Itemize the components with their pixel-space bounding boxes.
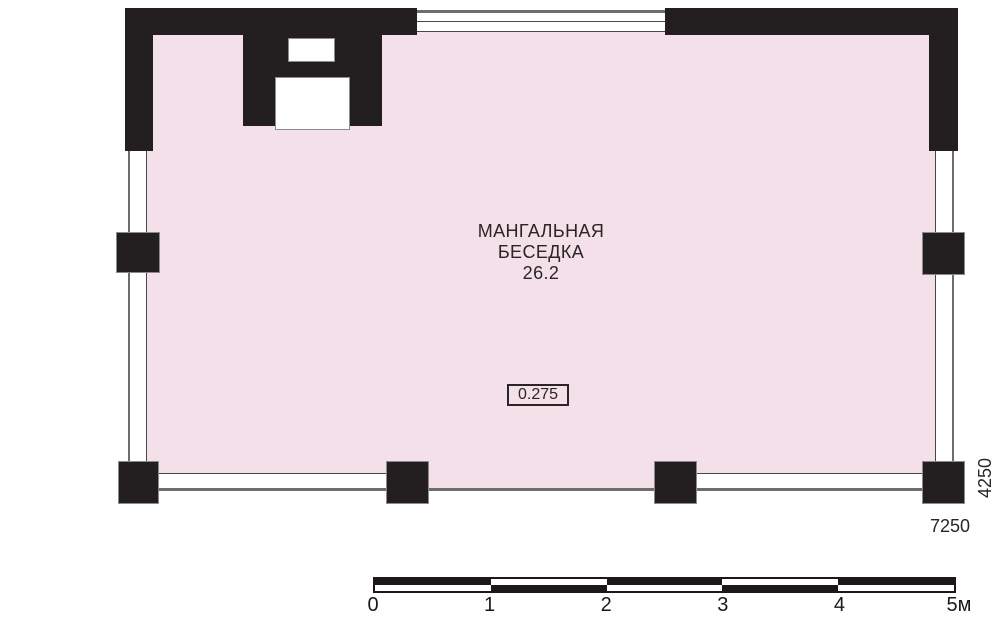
wall-left	[125, 8, 153, 151]
scale-label-5: 5м	[946, 594, 971, 617]
entry-opening	[428, 471, 655, 488]
scale-bar-segment	[491, 579, 607, 591]
scale-bar-segment	[607, 579, 723, 591]
elevation-mark-box: 0.275	[507, 384, 569, 406]
scale-label-2: 2	[601, 594, 612, 617]
wall-right	[929, 8, 958, 151]
room-name-line2: БЕСЕДКА	[400, 242, 682, 263]
room-name-line1: МАНГАЛЬНАЯ	[400, 221, 682, 242]
scale-bar-segment	[722, 579, 838, 591]
window-left	[128, 150, 147, 462]
scale-bar-cell	[607, 585, 723, 591]
scale-bar-segment	[838, 579, 954, 591]
scale-bar-segment	[375, 579, 491, 591]
wall-top-right	[665, 8, 957, 35]
column-bottom-right	[922, 461, 965, 504]
scale-bar-cell	[838, 585, 954, 591]
wall-top-left	[125, 8, 417, 35]
scale-bar	[373, 577, 956, 593]
room-label: МАНГАЛЬНАЯ БЕСЕДКА 26.2	[400, 221, 682, 284]
dimension-width-label: 7250	[919, 516, 981, 537]
column-bottom-middle-2	[654, 461, 697, 504]
column-bottom-middle-1	[386, 461, 429, 504]
scale-bar-labels: 0 1 2 3 4 5м	[373, 594, 956, 618]
elevation-mark-value: 0.275	[518, 386, 558, 404]
scale-bar-cell	[722, 585, 838, 591]
window-top	[417, 10, 665, 32]
column-mid-left	[116, 232, 160, 273]
scale-bar-cell	[375, 585, 491, 591]
column-mid-right	[922, 232, 965, 275]
scale-label-3: 3	[717, 594, 728, 617]
column-bottom-left	[118, 461, 159, 504]
scale-label-1: 1	[484, 594, 495, 617]
scale-bar-cell	[491, 585, 607, 591]
mangal-opening-upper	[288, 38, 335, 62]
floor-plan-canvas: МАНГАЛЬНАЯ БЕСЕДКА 26.2 0.275 4250 7250 …	[0, 0, 1000, 618]
scale-label-4: 4	[834, 594, 845, 617]
scale-label-0: 0	[367, 594, 378, 617]
dimension-height-label: 4250	[972, 450, 998, 506]
mangal-opening-lower	[275, 77, 350, 130]
window-right	[935, 150, 954, 462]
window-top-midline	[417, 21, 665, 22]
room-area: 26.2	[400, 263, 682, 284]
